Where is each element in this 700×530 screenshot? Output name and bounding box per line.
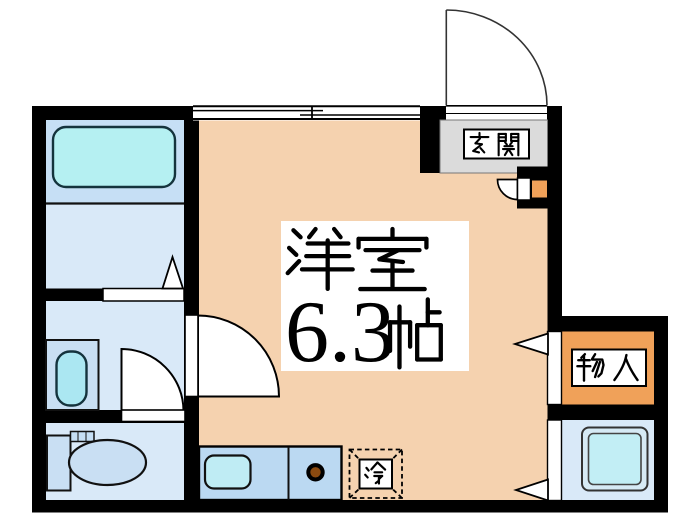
svg-text:6.3: 6.3	[285, 284, 395, 381]
